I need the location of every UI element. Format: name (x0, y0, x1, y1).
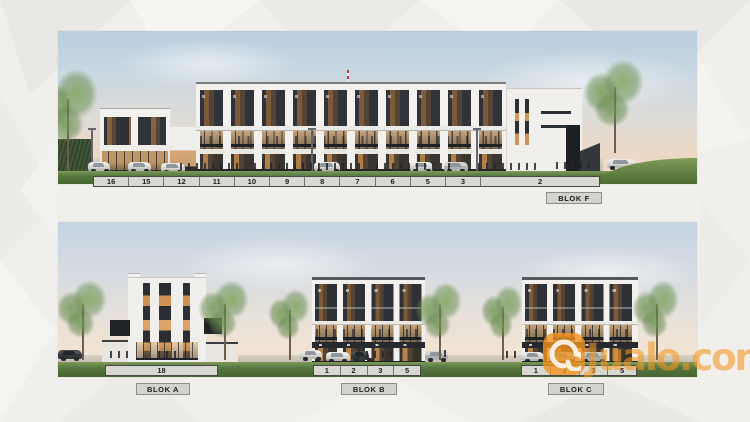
blok-abc-elevation-panel (58, 222, 697, 377)
tree (586, 61, 644, 153)
unit-number-cell: 5 (393, 366, 420, 375)
unit-number-cell: 5 (607, 366, 636, 375)
upper-floor-windows (312, 284, 425, 321)
blok-c-building (522, 277, 638, 363)
unit-number-cell: 8 (304, 177, 339, 186)
car (580, 352, 606, 361)
tree (58, 71, 98, 171)
unit-number-cell: 18 (106, 366, 217, 375)
block-label-f: BLOK F (546, 192, 602, 204)
tree (418, 284, 462, 360)
pedestrians (158, 351, 176, 358)
tree (201, 282, 249, 360)
unit-number-cell: 1 (522, 366, 550, 375)
pedestrians (376, 163, 456, 170)
blok-f-row-building (196, 82, 506, 172)
parapet (100, 108, 170, 117)
third-floor-windows (196, 90, 506, 126)
listing-image: 16151211109876532 BLOK F 18 BLOK A 1235 … (0, 0, 750, 422)
unit-number-cell: 7 (339, 177, 374, 186)
unit-number-cell: 6 (375, 177, 410, 186)
unit-number-cell: 11 (199, 177, 234, 186)
tree (635, 282, 679, 360)
tree (59, 282, 107, 360)
block-label-a: BLOK A (136, 383, 190, 395)
parapet (196, 82, 506, 90)
pedestrians (478, 163, 536, 170)
unit-number-cell: 2 (340, 366, 367, 375)
block-label-b: BLOK B (341, 383, 397, 395)
block-label-c: BLOK C (548, 383, 604, 395)
car (326, 352, 350, 361)
tree (483, 286, 523, 360)
window-slit (541, 111, 571, 114)
second-floor-balcony (522, 325, 638, 342)
unit-number-strip-blok-f: 16151211109876532 (93, 176, 600, 187)
unit-number-strip-blok-c: 1235 (521, 365, 637, 376)
car (128, 162, 151, 171)
side-canopy (110, 320, 130, 336)
unit-number-cell: 12 (163, 177, 198, 186)
unit-number-cell: 5 (410, 177, 445, 186)
unit-number-cell: 3 (367, 366, 394, 375)
pedestrians (358, 351, 398, 358)
pedestrians (110, 351, 132, 358)
unit-number-cell: 3 (445, 177, 480, 186)
second-floor-balcony (312, 325, 425, 342)
pedestrians (556, 162, 592, 169)
upper-floor-windows (522, 284, 638, 321)
unit-number-cell: 16 (94, 177, 128, 186)
unit-number-cell: 10 (234, 177, 269, 186)
unit-number-cell: 15 (128, 177, 163, 186)
pedestrians (180, 163, 240, 170)
window-slit (515, 99, 519, 145)
car (522, 352, 544, 361)
upper-windows (100, 117, 170, 145)
unit-number-cell: 2 (550, 366, 579, 375)
pedestrians (254, 163, 364, 170)
car (548, 352, 574, 361)
blok-f-elevation-panel (58, 31, 697, 184)
tree (270, 290, 310, 360)
unit-number-cell: 3 (579, 366, 608, 375)
unit-number-strip-blok-a: 18 (105, 365, 218, 376)
unit-number-cell: 9 (269, 177, 304, 186)
unit-number-strip-blok-b: 1235 (313, 365, 421, 376)
window-slit (525, 99, 529, 145)
second-floor-balcony (196, 131, 506, 149)
unit-number-cell: 1 (314, 366, 340, 375)
unit-number-cell: 2 (480, 177, 599, 186)
blok-a-building (128, 273, 206, 362)
